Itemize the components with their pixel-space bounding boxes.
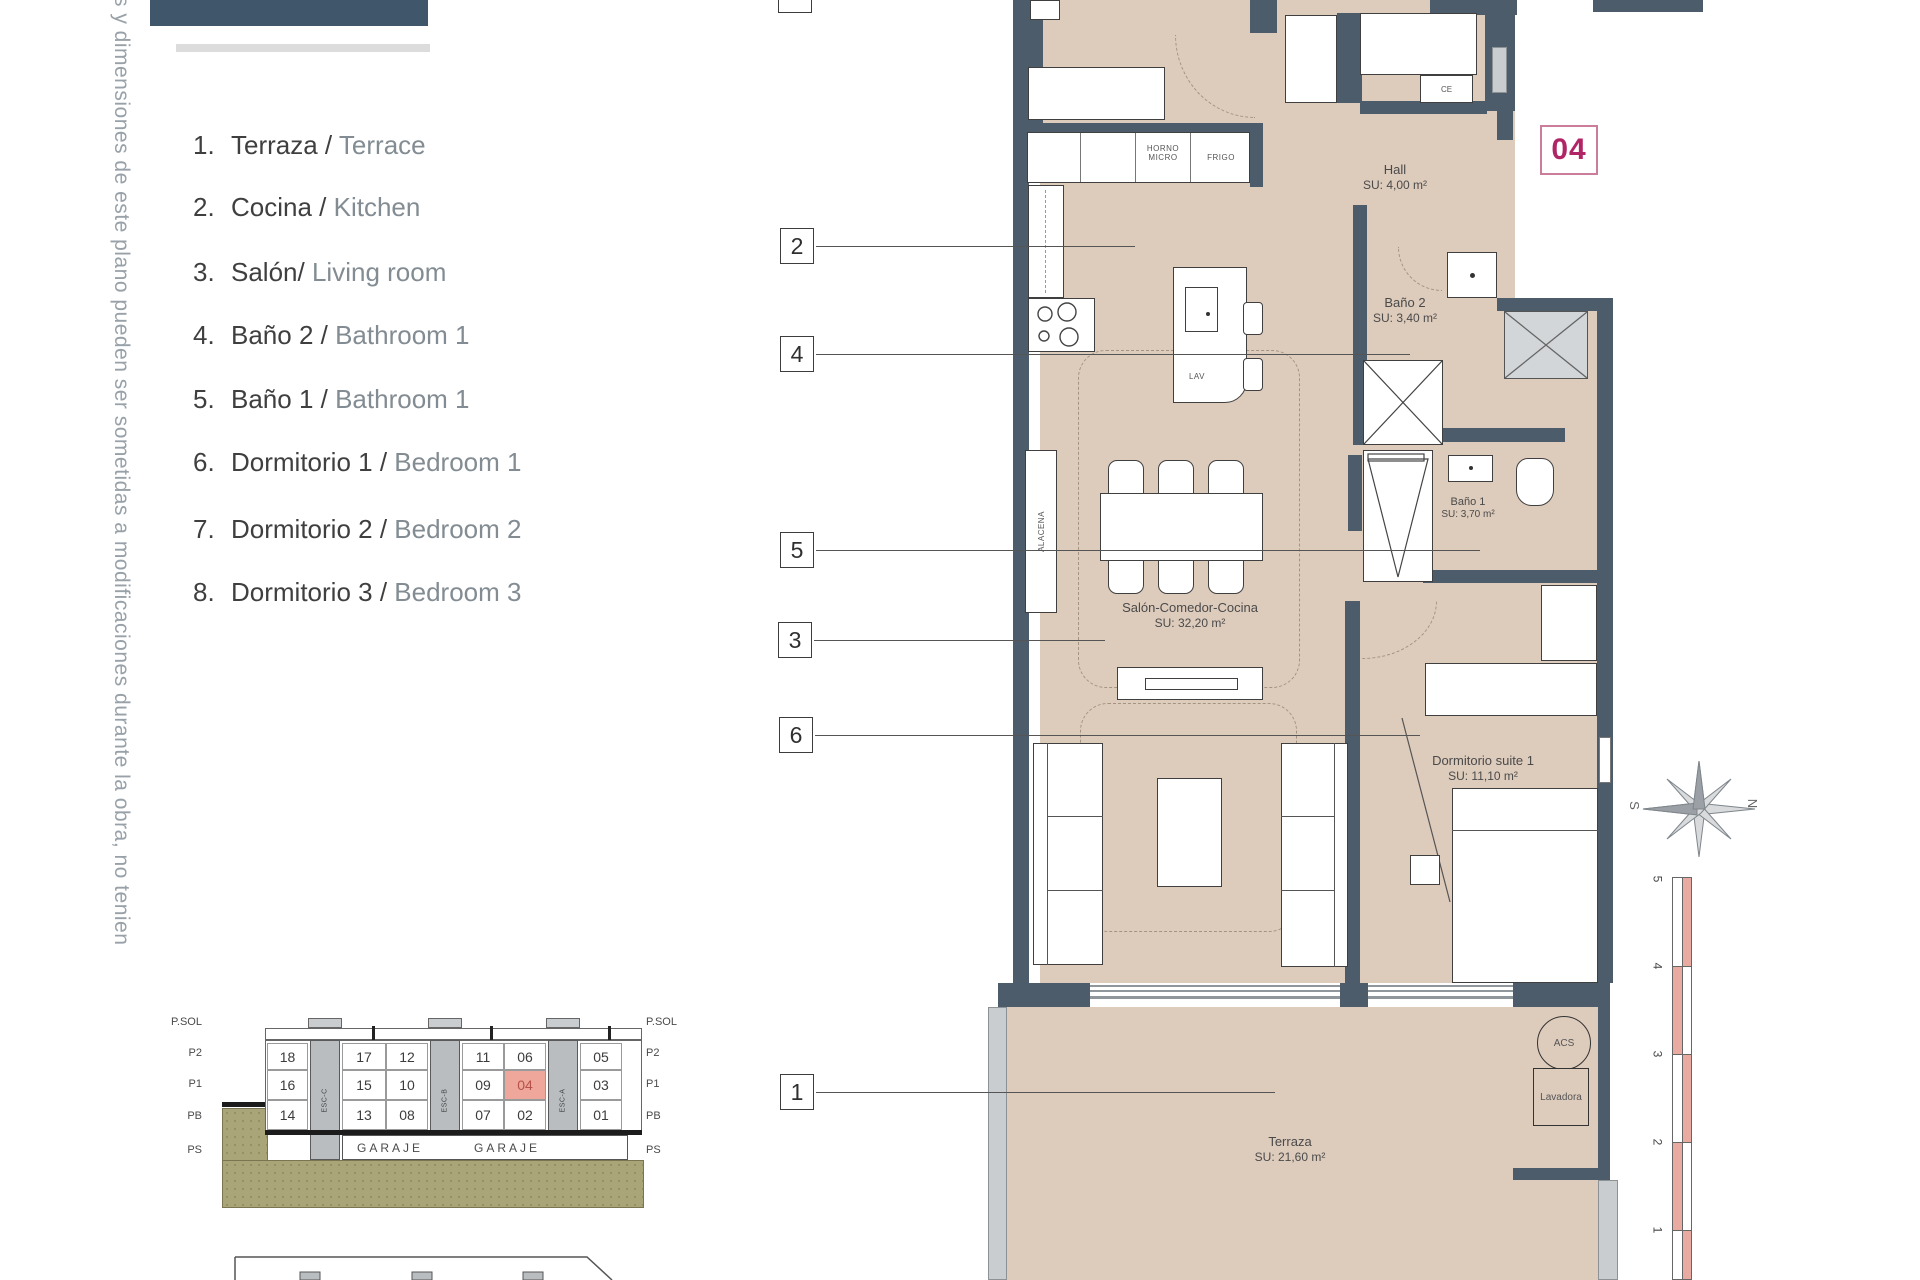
garage-label: GARAJE xyxy=(345,1141,435,1155)
unit-cell: 05 xyxy=(580,1043,622,1070)
floor-label-left: P2 xyxy=(150,1047,202,1059)
unit-cell: 06 xyxy=(504,1043,546,1070)
floor-label-right: P2 xyxy=(646,1047,659,1059)
floor-label-right: P1 xyxy=(646,1078,659,1090)
wall-fragment xyxy=(1593,0,1703,12)
shower-x-icon xyxy=(1364,361,1442,444)
unit-cell: 07 xyxy=(462,1100,504,1130)
coffee-table xyxy=(1157,778,1222,887)
wall xyxy=(1250,123,1263,187)
bed-sheet-line xyxy=(1452,830,1598,831)
wall xyxy=(1597,311,1613,983)
sink-dot xyxy=(1206,312,1210,316)
stool xyxy=(1243,302,1263,335)
elevator-x-icon xyxy=(1505,312,1587,378)
legend-item-salon: 3.Salón/ Living room xyxy=(193,257,446,288)
sofa-cushion-lines xyxy=(1047,743,1048,965)
acs-label: ACS xyxy=(1554,1038,1575,1049)
alacena-cabinet: ALACENA xyxy=(1025,450,1057,613)
callout-box-3: 3 xyxy=(778,622,812,658)
scale-seg xyxy=(1673,966,1682,1054)
unit-cell: 11 xyxy=(462,1043,504,1070)
dining-chair xyxy=(1108,556,1144,594)
floor-label-right: P.SOL xyxy=(646,1016,677,1028)
entry-closet xyxy=(1360,13,1477,75)
wall xyxy=(998,983,1090,1007)
scale-seg xyxy=(1682,1230,1691,1280)
callout-leader xyxy=(814,640,1105,641)
scale-seg xyxy=(1682,1054,1691,1142)
floor-label-left: PS xyxy=(150,1144,202,1156)
kitchen-counter-top xyxy=(1028,67,1165,120)
stool xyxy=(1243,358,1263,391)
shower xyxy=(1363,360,1443,445)
ground xyxy=(222,1108,268,1164)
room-label-suite: Dormitorio suite 1SU: 11,10 m² xyxy=(1432,753,1534,783)
legend-item-bano1: 5.Baño 1 / Bathroom 1 xyxy=(193,384,470,415)
scale-tick-line xyxy=(1673,1142,1691,1143)
window xyxy=(1599,737,1611,783)
scale-bar xyxy=(1672,877,1692,1280)
sofa-cushion-lines xyxy=(1047,890,1103,891)
room-label-bano1: Baño 1SU: 3,70 m² xyxy=(1441,496,1494,520)
compass-rose-icon xyxy=(1640,755,1758,863)
scale-number: 4 xyxy=(1650,963,1664,970)
terrace-balustrade xyxy=(1598,1180,1618,1280)
callout-leader xyxy=(816,1092,1275,1093)
closet xyxy=(1030,0,1060,20)
sink-dot xyxy=(1469,466,1473,470)
tv xyxy=(1145,678,1238,690)
neighbor-room xyxy=(1285,15,1337,103)
wall xyxy=(1513,983,1610,1007)
wardrobe-triangles-icon xyxy=(1364,451,1432,581)
unit-cell-highlighted: 04 xyxy=(504,1070,546,1100)
elevator-shaft xyxy=(1504,311,1588,379)
unit-cell: 13 xyxy=(342,1100,386,1130)
counter-dash-line xyxy=(1045,190,1046,293)
stove xyxy=(1028,298,1095,352)
garage-label: GARAJE xyxy=(462,1141,552,1155)
callout-box-6: 6 xyxy=(779,717,813,753)
dining-chair xyxy=(1158,556,1194,594)
scale-number: 5 xyxy=(1650,876,1664,883)
sink-dot xyxy=(1470,273,1475,278)
bathroom1-corner xyxy=(1541,585,1597,661)
floor-label-right: PS xyxy=(646,1144,661,1156)
stair-tower-esc-c: ESC-C xyxy=(310,1040,340,1160)
side-disclaimer-text: s y dimensiones de este plano pueden ser… xyxy=(109,0,133,1280)
room-label-salon: Salón-Comedor-CocinaSU: 32,20 m² xyxy=(1122,600,1258,630)
scale-seg xyxy=(1682,878,1691,966)
wall xyxy=(1250,0,1277,33)
unit-cell: 08 xyxy=(386,1100,428,1130)
scale-tick-line xyxy=(1673,966,1691,967)
horno-micro-label: HORNOMICRO xyxy=(1147,144,1179,162)
toilet xyxy=(1516,458,1554,506)
floorplan-sheet: s y dimensiones de este plano pueden ser… xyxy=(0,0,1920,1280)
header-banner-shadow xyxy=(176,44,430,52)
room-label-hall: HallSU: 4,00 m² xyxy=(1363,162,1427,192)
callout-leader xyxy=(816,246,1135,247)
legend-item-dorm1: 6.Dormitorio 1 / Bedroom 1 xyxy=(193,447,521,478)
ce-cell: CE xyxy=(1420,75,1473,103)
callout-box-5: 5 xyxy=(780,532,814,568)
scale-seg xyxy=(1673,1142,1682,1230)
wall xyxy=(1497,110,1513,140)
kitchen-counter-left xyxy=(1028,185,1064,298)
lav-label: LAV xyxy=(1189,372,1205,381)
unit-cell: 18 xyxy=(267,1043,308,1070)
ground xyxy=(222,1160,644,1208)
unit-cell: 09 xyxy=(462,1070,504,1100)
acs-boiler: ACS xyxy=(1537,1016,1591,1070)
header-banner xyxy=(150,0,428,26)
scale-mid-line xyxy=(1682,878,1683,1280)
legend-item-bano2: 4.Baño 2 / Bathroom 1 xyxy=(193,320,470,351)
alacena-label: ALACENA xyxy=(1037,511,1046,552)
floor-label-left: PB xyxy=(150,1110,202,1122)
room-label-bano2: Baño 2SU: 3,40 m² xyxy=(1373,295,1437,325)
roof-slab xyxy=(265,1028,642,1040)
floor-label-right: PB xyxy=(646,1110,661,1122)
sliding-glass-door xyxy=(1368,985,1513,999)
unit-cell: 16 xyxy=(267,1070,308,1100)
sofa xyxy=(1033,743,1103,965)
unit-cell: 03 xyxy=(580,1070,622,1100)
unit-cell: 15 xyxy=(342,1070,386,1100)
callout-box-4: 4 xyxy=(780,336,814,372)
unit-cell: 01 xyxy=(580,1100,622,1130)
joint-tick xyxy=(372,1026,375,1040)
wall xyxy=(1598,983,1610,1180)
lavadora-label: Lavadora xyxy=(1540,1092,1582,1103)
sofa-cushion-lines xyxy=(1281,816,1334,817)
site-outline-partial xyxy=(230,1250,625,1280)
callout-leader xyxy=(816,354,1410,355)
closet-wardrobe xyxy=(1363,450,1433,582)
unit-cell: 14 xyxy=(267,1100,308,1130)
unit-cell: 02 xyxy=(504,1100,546,1130)
unit-cell: 10 xyxy=(386,1070,428,1100)
ce-label: CE xyxy=(1441,85,1452,94)
cabinet-divider xyxy=(1080,133,1081,182)
scale-number: 1 xyxy=(1650,1227,1664,1234)
floor-label-left: P1 xyxy=(150,1078,202,1090)
sofa xyxy=(1281,743,1348,967)
burner-icon xyxy=(1029,299,1094,351)
joint-tick xyxy=(490,1026,493,1040)
wall xyxy=(1337,13,1362,103)
sofa-cushion-lines xyxy=(1047,816,1103,817)
legend-item-cocina: 2.Cocina / Kitchen xyxy=(193,192,420,223)
room-label-terraza: TerrazaSU: 21,60 m² xyxy=(1255,1134,1326,1164)
callout-box-partial xyxy=(778,0,812,13)
compass-north-label: N xyxy=(1748,796,1757,811)
callout-leader xyxy=(816,550,1480,551)
callout-leader xyxy=(815,735,1420,736)
legend-item-dorm3: 8.Dormitorio 3 / Bedroom 3 xyxy=(193,577,521,608)
floor-label-left: P.SOL xyxy=(150,1016,202,1028)
stair-cap xyxy=(308,1018,342,1028)
door-leaf xyxy=(1492,47,1507,93)
scale-number: 3 xyxy=(1650,1051,1664,1058)
nightstand xyxy=(1410,855,1440,885)
cabinet-divider xyxy=(1190,133,1191,182)
wall xyxy=(1348,455,1362,531)
legend-item-dorm2: 7.Dormitorio 2 / Bedroom 2 xyxy=(193,514,521,545)
sofa-cushion-lines xyxy=(1281,890,1334,891)
suite-wardrobe xyxy=(1425,663,1597,716)
island-sink xyxy=(1185,287,1218,332)
legend-item-terraza: 1.Terraza / Terrace xyxy=(193,130,426,161)
unit-badge: 04 xyxy=(1540,125,1598,175)
wall xyxy=(1513,1168,1610,1180)
sofa-cushion-lines xyxy=(1334,743,1335,967)
compass-south-label: S xyxy=(1630,798,1639,813)
stair-cap xyxy=(428,1018,462,1028)
wall xyxy=(1497,298,1613,311)
sliding-glass-door xyxy=(1090,985,1340,999)
wall xyxy=(1423,570,1597,583)
scale-tick-line xyxy=(1673,1054,1691,1055)
joint-tick xyxy=(608,1026,611,1040)
scale-number: 2 xyxy=(1650,1139,1664,1146)
callout-box-1: 1 xyxy=(780,1074,814,1110)
terrace-balustrade xyxy=(988,1007,1007,1280)
stair-cap xyxy=(546,1018,580,1028)
unit-cell: 17 xyxy=(342,1043,386,1070)
scale-tick-line xyxy=(1673,1230,1691,1231)
cabinet-divider xyxy=(1135,133,1136,182)
unit-cell: 12 xyxy=(386,1043,428,1070)
dining-chair xyxy=(1208,556,1244,594)
washing-machine: Lavadora xyxy=(1533,1068,1589,1126)
unit-badge-number: 04 xyxy=(1551,133,1586,167)
frigo-label: FRIGO xyxy=(1207,153,1235,162)
callout-box-2: 2 xyxy=(780,228,814,264)
wall xyxy=(1340,983,1368,1007)
